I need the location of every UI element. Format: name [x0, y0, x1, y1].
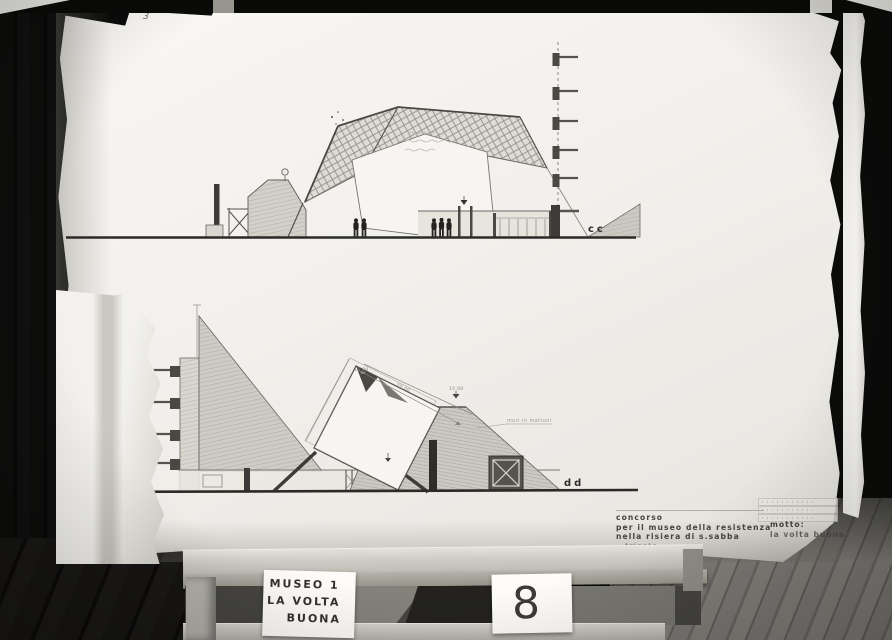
wall-note-text: muri in mattoni — [507, 418, 552, 424]
paper-corner-notch — [810, 0, 832, 13]
pencil-mark: 3 — [142, 12, 149, 23]
easel-bottom-rail — [183, 623, 665, 640]
tape-notch — [213, 0, 234, 13]
crumpled-paper-overlay — [56, 290, 164, 564]
card-line-3: BUONA — [286, 609, 354, 628]
ground-line-dd — [88, 490, 638, 492]
section-label-cc: cc — [588, 224, 606, 235]
dim-label-left: 15.90 — [354, 367, 369, 373]
title-line-2: per il museo della resistenza — [616, 523, 764, 533]
easel-left-leg — [186, 577, 216, 640]
top-dark-band — [0, 0, 892, 13]
board-number: 8 — [512, 578, 541, 629]
dome-finial — [282, 169, 288, 175]
title-line-3: nella risiera di s.sabba — [616, 532, 764, 542]
wall-annotation: muri in mattoni — [477, 418, 552, 428]
photo-of-architecture-board: 3 — [0, 0, 892, 640]
label-card-museo: MUSEO 1 LA VOLTA BUONA — [262, 570, 356, 639]
x-braced-opening — [489, 456, 523, 490]
section-dd: 15.90 20.00 15.00 muri in mattoni dd — [88, 305, 638, 492]
easel-right-end — [683, 549, 703, 591]
left-slope-building — [199, 316, 322, 471]
section-label-dd: dd — [564, 478, 584, 489]
stamp-boxes — [758, 498, 838, 519]
title-line-1: concorso — [616, 513, 764, 523]
card-line-2: LA VOLTA — [267, 592, 355, 611]
low-colonnade — [418, 211, 552, 237]
level-marker-icon — [453, 394, 460, 399]
motto-value: la volta buona — [770, 530, 845, 540]
bracket-tower — [551, 42, 579, 237]
motto-label: motto: — [770, 520, 845, 530]
number-card: 8 — [491, 573, 572, 633]
section-cc: cc — [66, 42, 640, 238]
left-bracket-tower — [153, 305, 201, 491]
pitched-building — [248, 169, 306, 237]
level-label: 15.00 — [449, 386, 464, 392]
dark-slot — [429, 440, 437, 490]
